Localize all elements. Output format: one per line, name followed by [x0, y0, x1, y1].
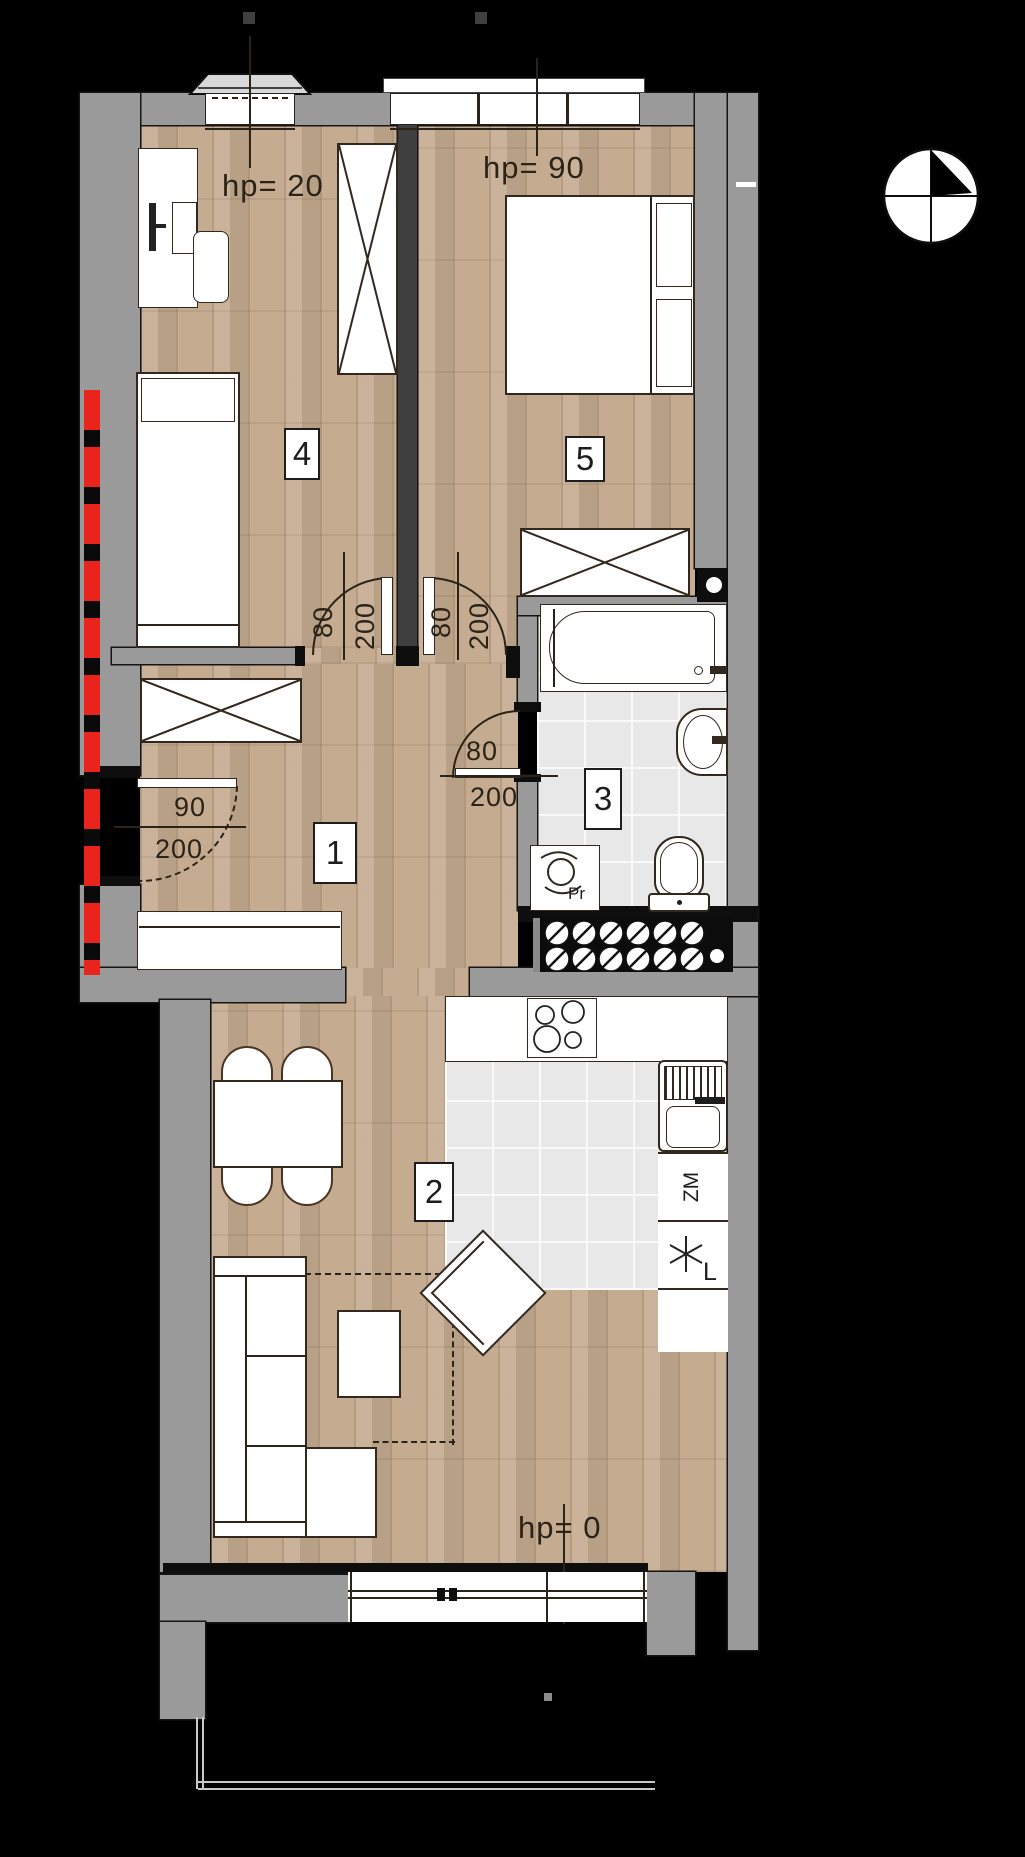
bathtub-drain: [694, 666, 703, 675]
freezer-star-icon: [664, 1232, 708, 1276]
dim-entrance-height: 200: [148, 834, 210, 865]
dim-door4-width: 80: [308, 592, 336, 652]
washing-machine: [530, 845, 600, 911]
parapet-label-living: hp= 0: [518, 1510, 601, 1546]
wall-cap-divider: [396, 646, 419, 666]
washbasin-faucet-icon: [712, 736, 728, 744]
pipe-risers-icon: [533, 918, 733, 972]
parapet-label-bedroom5: hp= 90: [483, 150, 585, 186]
wall-terrace-left: [160, 1622, 205, 1719]
room-tag-bedroom4: 4: [284, 428, 320, 480]
desk-chair: [193, 231, 229, 303]
dim-bathdoor-height: 200: [462, 782, 526, 813]
wall-right: [728, 93, 758, 1650]
terrace-railing-left: [196, 1717, 204, 1789]
axis-marker-2: [475, 12, 487, 24]
dim-line-entrance: [114, 826, 246, 828]
window-bedroom5-outer-sill: [383, 78, 645, 93]
axis-marker-1: [243, 12, 255, 24]
wardrobe-x-icon: [339, 145, 396, 373]
right-wall-slit: [736, 182, 756, 187]
room-tag-bedroom5: 5: [565, 436, 605, 482]
dim-door4-height: 200: [350, 596, 378, 656]
door-bedroom4-leaf: [381, 577, 393, 655]
wall-cap-entrance-top: [96, 766, 140, 778]
sink-faucet-icon: [695, 1097, 725, 1104]
bed-double-blanket-line: [650, 197, 652, 393]
window-living-mullion-2: [643, 1572, 645, 1622]
window-bedroom5-sill: [390, 128, 640, 130]
north-compass: [881, 146, 981, 246]
bathtub-frame-line: [553, 609, 555, 687]
bed-double-pillow-1: [656, 203, 692, 287]
wall-hall-south-right: [470, 968, 758, 996]
fridge-label: L: [703, 1258, 717, 1287]
cooktop: [527, 998, 597, 1058]
cooktop-burners-icon: [528, 999, 594, 1055]
dim-line-door5: [457, 552, 459, 660]
sofa-armrest-line-top: [215, 1275, 305, 1277]
wardrobe-bedroom4: [337, 143, 398, 375]
washing-machine-icon: [531, 846, 597, 908]
monitor-icon: [149, 203, 156, 251]
fridge-unit: [658, 1222, 728, 1290]
bathtub-inner: [549, 611, 715, 684]
window-living-frame-1: [348, 1590, 647, 1592]
wall-bedroom4-south: [112, 648, 303, 664]
wall-hall-south-left: [80, 968, 345, 1002]
dim-door5-width: 80: [426, 592, 454, 652]
sink-basin: [666, 1106, 720, 1148]
vent-shaft-icon: [706, 577, 722, 593]
room-tag-hall: 1: [313, 822, 357, 884]
window-bedroom5-mullion-2: [566, 93, 569, 125]
pipe-shaft-strip: [533, 918, 733, 972]
window-bedroom5-mullion-1: [477, 93, 480, 125]
toilet-flush-button: [677, 900, 682, 905]
window5-center-line: [536, 58, 538, 156]
toilet-bowl-inner: [660, 842, 698, 894]
balcony-door-latch-1: [437, 1588, 445, 1601]
window-bedroom5: [390, 93, 640, 125]
sofa-cushion-line-1: [245, 1355, 307, 1357]
dim-line-door4: [343, 552, 345, 660]
floor-plan: Pr ZM L: [0, 0, 1025, 1857]
wall-cap-door5: [506, 646, 520, 678]
sofa-main: [213, 1256, 307, 1538]
parapet-label-bedroom4: hp= 20: [222, 168, 324, 204]
monitor-stand: [156, 224, 166, 228]
kitchen-unit-continuation: [658, 1290, 728, 1352]
bed-single-footline: [138, 624, 238, 626]
wall-living-west: [160, 1000, 210, 1572]
dim-bathdoor-width: 80: [460, 736, 504, 767]
dining-table: [213, 1080, 343, 1168]
wall-bottom-right: [647, 1572, 695, 1655]
wall-bedroom5-east: [695, 93, 728, 568]
bed-single-pillow: [141, 378, 235, 422]
window-living-mullion-0: [350, 1572, 352, 1622]
wardrobe-x-icon: [522, 530, 688, 595]
window4-center-line: [249, 36, 251, 168]
coffee-table: [337, 1310, 401, 1398]
room-tag-bathroom: 3: [584, 768, 622, 830]
wardrobe-x-icon: [142, 680, 300, 741]
dishwasher-label: ZM: [680, 1157, 706, 1217]
washing-machine-label: Pr: [568, 884, 585, 904]
sofa-armrest-line-bottom: [215, 1521, 305, 1523]
red-marker-strip: [84, 390, 100, 975]
sofa-back-line: [245, 1277, 247, 1523]
sink-drainer: [664, 1066, 722, 1100]
balcony-door-latch-2: [449, 1588, 457, 1601]
wall-cap-entrance-bottom: [96, 876, 140, 886]
wall-cap-door4: [295, 646, 305, 666]
dim-line-bathdoor: [440, 775, 558, 777]
door-entrance-leaf: [137, 778, 237, 788]
sofa-cushion-line-2: [245, 1445, 307, 1447]
wall-bottom-left: [160, 1575, 348, 1622]
room-tag-living: 2: [414, 1162, 454, 1222]
wardrobe-hall: [140, 678, 302, 743]
compass-north-icon: [881, 146, 981, 246]
ceiling-slope-dash-3: [373, 1441, 455, 1443]
dim-entrance-width: 90: [168, 792, 212, 823]
wardrobe-bedroom5: [520, 528, 690, 597]
window-living-mullion-1: [546, 1572, 548, 1622]
sofa-chaise: [305, 1447, 377, 1538]
dim-door5-height: 200: [464, 596, 492, 656]
hall-closet: [137, 911, 342, 970]
bathtub-faucet-icon: [710, 666, 726, 674]
bed-double-pillow-2: [656, 299, 692, 387]
window-living-frame-2: [348, 1597, 647, 1599]
hall-closet-edge: [139, 926, 340, 928]
terrace-railing-bottom: [198, 1781, 655, 1790]
terrace-marker-dot: [544, 1693, 552, 1701]
wall-divider-rooms-4-5: [398, 125, 417, 664]
